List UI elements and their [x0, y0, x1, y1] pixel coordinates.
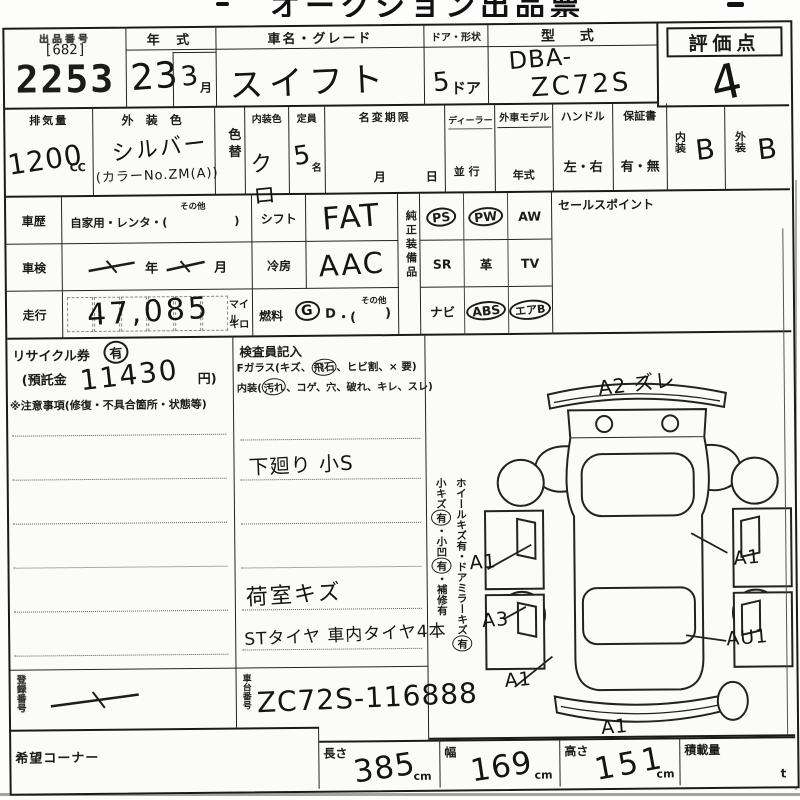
inspector-line [240, 438, 420, 441]
recycle-label: リサイクル券 [12, 345, 90, 365]
exterior-grade-label: 外装 [731, 131, 747, 153]
fuel-close: ) [385, 306, 391, 321]
displacement-label: 排気量 [5, 112, 92, 129]
history-value-cell: 自家用・レンタ・( その他 ) [62, 195, 252, 244]
dealer-cell: ディーラー 並 行 [445, 105, 496, 193]
side-note2-p2: ・小凹 [435, 526, 447, 558]
equip-cell-abs: ABS [465, 287, 509, 335]
car-name-cell: 車名・グレード スイフト [216, 26, 425, 108]
equip-cell-leather: 革 [464, 240, 508, 287]
color-change-cell: 色替 [215, 107, 246, 195]
model-line2: ZC72S [530, 67, 632, 103]
recycle-deposit-close: 円) [198, 368, 217, 387]
height-cell: 高さ 151 cm [559, 737, 679, 786]
left-notes-column: リサイクル券 有 (預託金 11430 円) ※注意事項(修復・不具合箇所・状態… [7, 338, 236, 670]
history-text: 自家用・レンタ・( [70, 214, 167, 231]
history-label-cell: 車歴 [6, 197, 62, 245]
lot-number: 2253 [5, 57, 126, 102]
damage-mark-right-rear: AU1 [725, 625, 769, 650]
clipped-header: オークション出品票 [270, 0, 610, 17]
displacement-cell: 排気量 1200 CC [5, 109, 94, 198]
equip-cell-sr: SR [420, 240, 464, 287]
shift-value: FAT [321, 197, 382, 238]
fuel-other: その他 [361, 294, 387, 306]
inspector-note3: STタイヤ 車内タイヤ4本 [244, 616, 447, 650]
payload-unit: t [780, 766, 786, 780]
import-model-label: 外車モデル [497, 109, 551, 129]
doors-cell: ドア・形状 5 ドア [424, 25, 489, 106]
fuel-label: 燃料 [259, 307, 283, 324]
equip-aw: AW [518, 208, 541, 223]
height-value: 151 [592, 740, 669, 788]
height-label: 高さ [564, 742, 588, 759]
glass-circled: 飛石 [311, 358, 338, 377]
name-change-cell: 名変期限 月 日 [325, 106, 446, 195]
capacity-cell: 定員 5 名 [289, 107, 326, 195]
side-note1-pre: ホイールキズ有・ドアミラーキズ [455, 477, 469, 635]
warranty-label: 保証書 [613, 107, 666, 124]
inspector-note1: 下廻り 小S [248, 447, 354, 481]
year-month-unit: 月 [200, 79, 212, 96]
doors-value-unit: ドア [451, 77, 481, 98]
fuel-paren: ・( [337, 306, 356, 325]
length-label: 長さ [323, 745, 347, 762]
cooling-value: AAC [318, 245, 386, 283]
lot-cell: 出品番号 [682] 2253 [4, 29, 127, 110]
caution-line [14, 566, 228, 569]
registration-row: 登録番号 [10, 668, 237, 730]
side-note2-c1: 有 [431, 509, 451, 526]
score-cell: 評価点 4 [656, 22, 789, 107]
strike-mark [164, 258, 208, 274]
color-change-label: 色替 [223, 128, 242, 162]
caution-line [12, 434, 226, 437]
equip-sr: SR [433, 256, 452, 271]
inspector-interior-line: 内装(汚れ、コゲ、穴、破れ、キレ、スレ) [237, 377, 433, 396]
score-label: 評価点 [688, 28, 760, 56]
scan-artifact [727, 2, 744, 7]
equip-cell-ps: PS [420, 193, 464, 240]
displacement-unit: CC [70, 161, 86, 174]
caution-line [14, 654, 228, 657]
dealer-label: ディーラー [448, 113, 493, 129]
registration-label: 登録番号 [13, 675, 27, 713]
recycle-deposit-value: 11430 [78, 353, 180, 397]
model-label: 型 式 [488, 24, 656, 48]
shift-value-cell: FAT [306, 194, 398, 242]
inspector-glass-line: Fガラス(キズ、飛石、ヒビ割、× 要) [237, 358, 417, 377]
year-label: 年 式 [126, 28, 215, 51]
caution-label: ※注意事項(修復・不具合箇所・状態等) [10, 396, 207, 414]
handle-cell: ハンドル 左・右 [553, 104, 614, 193]
equip-cell-pw: PW [464, 193, 508, 240]
inspection-label: 車検 [22, 259, 46, 276]
interior-post: 、コゲ、穴、破れ、キレ、スレ) [286, 382, 433, 394]
import-model-sub: 年式 [513, 167, 535, 183]
mileage-unit-bottom: キロ [229, 315, 249, 330]
caution-line [13, 522, 227, 525]
exterior-color-value: シルバー [110, 125, 209, 168]
glass-post: 、ヒビ割、× 要) [336, 361, 416, 374]
warranty-value: 有・無 [614, 155, 667, 175]
caution-line [14, 610, 228, 613]
displacement-value: 1200 [6, 138, 85, 182]
history-label: 車歴 [22, 212, 46, 229]
exterior-grade-cell: 外装 B [725, 106, 790, 191]
diagram-cell: ホイールキズ有・ドアミラーキズ有 小キズ有・小凹有・補修有 [425, 332, 795, 739]
width-label: 幅 [444, 743, 456, 760]
cooling-label: 冷房 [267, 257, 291, 274]
equipment-label: 純正装備品 [402, 210, 419, 280]
inspector-line [242, 566, 422, 569]
strike-mark [47, 689, 147, 710]
year-month-value: 3 [179, 60, 201, 93]
interior-grade-cell: 内装 B [667, 107, 726, 192]
inspector-note2: 荷室キズ [245, 574, 343, 612]
damage-mark-right-front: A1 [733, 546, 762, 570]
equip-leather: 革 [480, 254, 493, 273]
equip-navi: ナビ [430, 301, 455, 320]
name-change-day: 日 [426, 168, 438, 185]
fuel-g-circled: G [294, 300, 320, 322]
side-note2-p1: 小キズ [435, 478, 447, 510]
equip-ps: PS [426, 206, 458, 228]
equip-abs: ABS [466, 299, 508, 322]
side-note2-p3: ・補修有 [436, 574, 448, 616]
inspector-column: 検査員記入 Fガラス(キズ、飛石、ヒビ割、× 要) 内装(汚れ、コゲ、穴、破れ、… [233, 336, 428, 668]
side-note2-c2: 有 [431, 557, 451, 574]
handle-value: 左・右 [554, 156, 613, 176]
length-cell: 長さ 385 cm [319, 740, 439, 789]
caution-line [13, 478, 227, 481]
score-value: 4 [705, 52, 748, 114]
capacity-unit: 名 [312, 159, 322, 174]
recycle-deposit-open: (預託金 [22, 369, 67, 388]
doors-value-num: 5 [431, 67, 451, 99]
capacity-value: 5 [291, 140, 313, 172]
name-change-label: 名変期限 [325, 109, 444, 126]
exterior-color-no: (カラーNo.ZM(A)) [95, 162, 219, 186]
import-model-cell: 外車モデル 年式 [495, 105, 554, 194]
interior-grade-label: 内装 [671, 131, 687, 153]
side-note1-circled: 有 [452, 635, 472, 652]
inspection-value-cell: 年 月 [62, 242, 252, 291]
auction-sheet: 出品番号 [682] 2253 年 式 23 3 月 車名・グレード スイフト … [2, 20, 799, 796]
sales-point-label: セールスポイント [558, 196, 654, 214]
model-line1: DBA- [508, 42, 574, 75]
payload-cell: 積載量 t [679, 736, 795, 785]
corner-label: 希望コーナー [15, 747, 99, 767]
equip-cell-aw: AW [508, 193, 551, 240]
exterior-grade-value: B [756, 131, 780, 166]
sales-point-cell: セールスポイント [551, 190, 791, 334]
model-cell: 型 式 DBA- ZC72S [488, 24, 657, 106]
exterior-color-cell: 外 装 色 シルバー (カラーNo.ZM(A)) [93, 108, 216, 197]
interior-pre: 内装( [237, 383, 262, 394]
equip-cell-navi: ナビ [421, 287, 465, 335]
year-month-box: 3 月 [173, 52, 218, 108]
equip-cell-tv: TV [508, 240, 551, 287]
equip-pw: PW [467, 205, 504, 227]
car-name-label: 車名・グレード [216, 26, 423, 50]
width-value: 169 [468, 745, 535, 790]
width-cell: 幅 169 cm [439, 738, 559, 787]
height-unit: cm [656, 767, 674, 780]
equipment-label-cell: 純正装備品 [398, 194, 421, 336]
handle-label: ハンドル [553, 108, 612, 125]
cooling-value-cell: AAC [306, 241, 398, 289]
fuel-cell: 燃料 G D ・( その他 ) [253, 288, 399, 337]
damage-mark-left-mid: A3 [481, 608, 510, 632]
history-close: ) [234, 214, 239, 228]
shift-label-cell: シフト [252, 195, 306, 243]
fuel-d: D [325, 307, 336, 322]
payload-label: 積載量 [684, 741, 720, 758]
cooling-label-cell: 冷房 [252, 242, 306, 290]
chassis-label: 車台番号 [240, 673, 253, 709]
clipped-header-text: オークション出品票 [270, 0, 585, 17]
equip-tv: TV [521, 255, 539, 270]
inspection-year-unit: 年 [145, 257, 158, 276]
doors-label: ドア・形状 [424, 25, 487, 48]
shift-label: シフト [261, 209, 297, 226]
scan-artifact [216, 2, 229, 6]
mileage-label-cell: 走行 [7, 291, 63, 340]
interior-color-cell: 内装色 クロ [245, 107, 290, 195]
glass-pre: Fガラス(キズ、 [237, 362, 312, 375]
year-cell: 年 式 23 3 月 [126, 28, 217, 109]
damage-mark-left-rear: A1 [504, 668, 533, 692]
strike-mark [87, 259, 139, 275]
warranty-cell: 保証書 有・無 [613, 103, 668, 192]
chassis-row: 車台番号 ZC72S-116888 [236, 666, 429, 742]
interior-color-label: 内装色 [245, 110, 288, 125]
mileage-label: 走行 [22, 306, 46, 323]
mileage-value-cell: 47,085 マイル キロ [63, 289, 253, 339]
history-other: その他 [180, 200, 206, 212]
capacity-label: 定員 [289, 110, 324, 125]
equip-airbag: エアB [508, 298, 552, 322]
interior-grade-value: B [694, 132, 718, 167]
interior-circled: 汚れ [261, 377, 287, 396]
length-value: 385 [351, 746, 418, 791]
inspection-label-cell: 車検 [6, 244, 62, 292]
inspector-line [241, 522, 421, 525]
score-header-box: 評価点 [666, 26, 782, 57]
name-change-month: 月 [374, 168, 386, 185]
width-unit: cm [534, 769, 552, 782]
length-unit: cm [413, 770, 431, 783]
damage-mark-bottom: A1 [600, 715, 629, 739]
equip-cell-airbag: エアB [509, 287, 552, 335]
dealer-sub: 並 行 [454, 163, 480, 179]
inspection-month-unit: 月 [214, 256, 227, 275]
car-name-value: スイフト [228, 51, 390, 107]
inspector-label: 検査員記入 [239, 341, 302, 361]
damage-mark-left-front: A1 [469, 550, 498, 574]
